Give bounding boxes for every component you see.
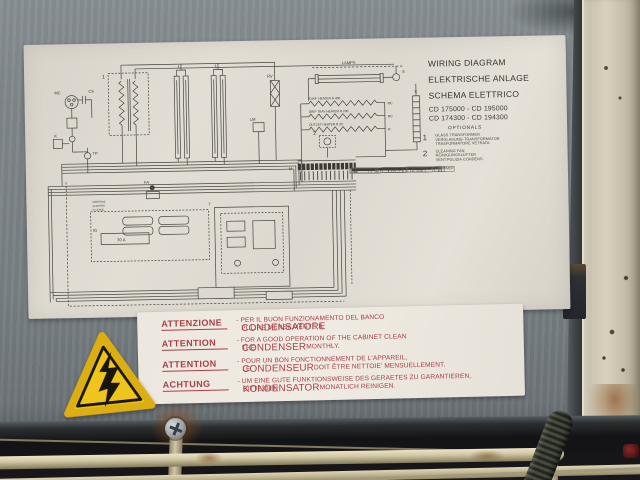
dirt-speckles <box>596 40 636 420</box>
fa-label: FA <box>144 180 149 185</box>
wire-color-label: G.VERDE <box>93 208 105 212</box>
thermostat-block <box>215 206 290 287</box>
attention-language-label: ATTENTION <box>162 337 228 350</box>
mc-label: MC <box>54 90 60 95</box>
cs-label: CS <box>88 89 94 94</box>
terminal-label: M <box>289 166 292 171</box>
drip-heater-label: DRIP TRAY HEATER R 200 <box>309 109 349 114</box>
rc2-label: RC <box>388 114 394 118</box>
heading-line: WIRING DIAGRAM <box>428 56 560 68</box>
optionals-title: OPTIONALS <box>448 123 567 131</box>
wiring-diagram-label: MC CS K TP 1 2 L L RV LM LAMPS S K EVAP.… <box>24 35 571 319</box>
cleaning-fan-symbol <box>319 135 335 157</box>
lamp-column-b <box>211 63 227 164</box>
lamps-label: LAMPS <box>342 60 356 65</box>
red-reflector <box>623 444 639 458</box>
label-heading: WIRING DIAGRAM ELEKTRISCHE ANLAGE SCHEMA… <box>428 56 561 122</box>
attention-language-label: ACHTUNG <box>163 378 229 391</box>
compressor-symbol <box>52 95 92 164</box>
dashed-boundary <box>66 177 344 306</box>
attention-language-label: ATTENTION <box>162 358 228 371</box>
lever-switch-symbol <box>253 123 265 164</box>
cable-colour-row: GRIGIO = GREY BIANCO = WHITE <box>350 167 407 174</box>
rv-label: RV <box>267 73 273 78</box>
lamp-column-a <box>174 64 190 165</box>
right-wire-bundle <box>332 190 352 296</box>
k-label: K <box>54 133 57 138</box>
optional-description: CLEANING FANREINIGUNGSLÜFTERVENT.PULIZIA… <box>436 148 484 162</box>
general-switch-block <box>91 210 210 262</box>
evap-heater-label: EVAP. HEATER R 400 <box>309 96 341 101</box>
high-voltage-warning-icon <box>54 324 159 422</box>
attention-label: ATTENZIONE - PER IL BUON FUNZIONAMENTO D… <box>137 304 525 405</box>
bottom-connector <box>266 291 292 299</box>
starter-label: S <box>402 69 405 74</box>
cable-colour-right-cell: BIANCO = WHITE <box>377 167 406 173</box>
screw-head <box>165 418 186 439</box>
wire-color-label: MARRONE <box>92 200 106 204</box>
cable-colour-left-cell: GRIGIO = GREY <box>350 168 377 173</box>
optionals-block: OPTIONALS 1 GLASS TRANSFORMERVERGLASUNG-… <box>417 123 568 166</box>
lm-label: LM <box>250 117 256 122</box>
pipe-rust-patch <box>196 452 222 464</box>
optional-number: 1 <box>417 134 432 147</box>
heading-line: ELEKTRISCHE ANLAGE <box>428 72 560 84</box>
schematic-wires <box>46 60 423 307</box>
optional-item: 2 CLEANING FANREINIGUNGSLÜFTERVENT.PULIZ… <box>418 147 568 163</box>
optional-1-marker: 1 <box>102 74 105 80</box>
terminal-strip <box>298 160 356 176</box>
optional-2-marker: 2 <box>313 131 316 137</box>
pipe-rust-patch <box>470 450 504 462</box>
r1-label: R <box>388 127 391 131</box>
attention-language-label: ATTENZIONE <box>161 317 227 330</box>
klixon-label: K <box>414 89 417 94</box>
photo-scene: MC CS K TP 1 2 L L RV LM LAMPS S K EVAP.… <box>0 0 640 480</box>
attention-text: - UM EINE GUTE FUNKTIONSWEISE DES GERAET… <box>238 373 472 396</box>
bottom-connector <box>198 287 234 299</box>
optional-item: 1 GLASS TRANSFORMERVERGLASUNG-TRANSFORMA… <box>417 131 567 147</box>
rc1-label: RC <box>388 101 394 105</box>
heading-line: SCHEMA ELETTRICO <box>428 88 560 100</box>
glass-transformer-symbol <box>108 65 150 167</box>
amp-label: 30 A <box>117 237 126 242</box>
attention-text: - POUR UN BON FONCTIONNEMENT DE L'APPARE… <box>237 354 408 375</box>
outlet-heater-label: OUTLET HEATER R 20 <box>309 122 343 127</box>
t-label: T <box>208 202 211 207</box>
optional-number: 2 <box>418 149 433 162</box>
attention-row: ACHTUNG - UM EINE GUTE FUNKTIONSWEISE DE… <box>163 372 517 397</box>
attention-text: - PER IL BUON FUNZIONAMENTO DEL BANCO PU… <box>236 313 385 334</box>
ig-label: IG <box>93 228 97 233</box>
main-wire-runs <box>48 181 358 303</box>
wire-color-label: AZZURRO <box>92 204 105 208</box>
attention-text: - FOR A GOOD OPERATION OF THE CABINET CL… <box>237 333 407 354</box>
tp-label: TP <box>92 151 98 156</box>
optional-description: GLASS TRANSFORMERVERGLASUNG-TRANSFORMATO… <box>435 132 500 146</box>
